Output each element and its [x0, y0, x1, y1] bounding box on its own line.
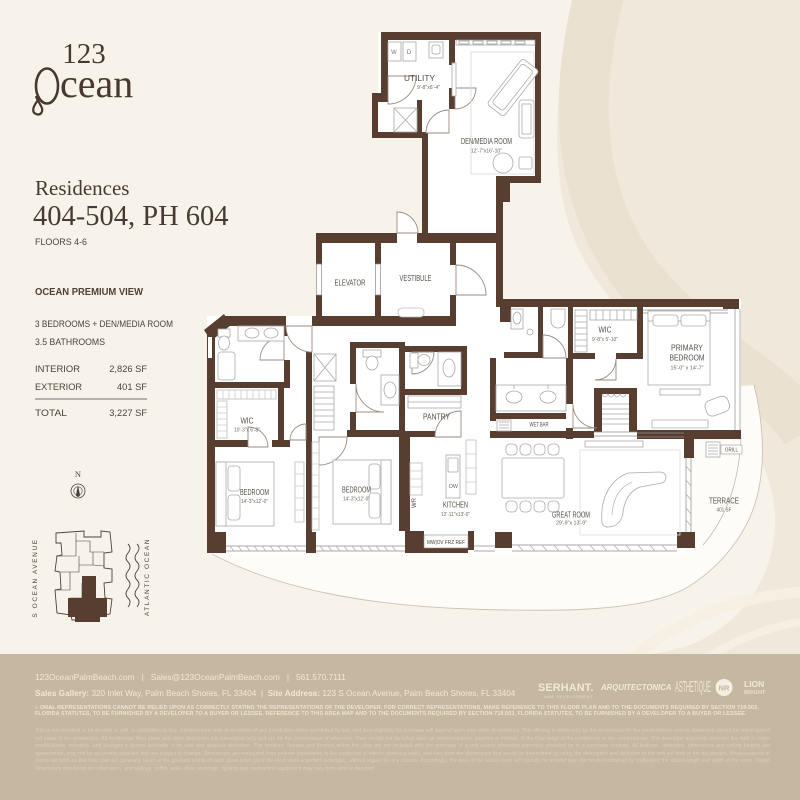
- svg-text:Sales Gallery: 320 Inlet Way,: Sales Gallery: 320 Inlet Way, Palm Beach…: [35, 689, 516, 698]
- svg-text:WIC: WIC: [599, 325, 612, 335]
- svg-text:WR: WR: [412, 497, 418, 508]
- svg-text:PRIMARY: PRIMARY: [671, 343, 703, 353]
- svg-text:VESTIBULE: VESTIBULE: [400, 273, 432, 283]
- svg-text:EXTERIOR: EXTERIOR: [35, 382, 82, 392]
- svg-text:OCEAN PREMIUM VIEW: OCEAN PREMIUM VIEW: [35, 286, 143, 298]
- svg-text:WIC: WIC: [241, 416, 254, 426]
- svg-text:NEW DEVELOPMENT: NEW DEVELOPMENT: [544, 695, 593, 699]
- svg-text:BRIGHT: BRIGHT: [744, 690, 766, 696]
- svg-text:SERHANT.: SERHANT.: [538, 682, 594, 694]
- svg-text:BEDROOM: BEDROOM: [342, 485, 371, 495]
- svg-text:INTERIOR: INTERIOR: [35, 364, 80, 374]
- svg-text:12'-7"x16'-10": 12'-7"x16'-10": [471, 149, 502, 155]
- svg-text:NR: NR: [719, 684, 730, 693]
- svg-text:PANTRY: PANTRY: [423, 412, 450, 422]
- svg-text:2,826 SF: 2,826 SF: [109, 364, 147, 374]
- svg-text:TERRACE: TERRACE: [709, 496, 739, 506]
- svg-text:UTILITY: UTILITY: [404, 73, 435, 83]
- svg-text:GREAT ROOM: GREAT ROOM: [552, 510, 590, 520]
- svg-text:404-504, PH 604: 404-504, PH 604: [33, 201, 229, 232]
- svg-text:BEDROOM: BEDROOM: [240, 487, 269, 497]
- svg-text:15'-0" x 14'-7": 15'-0" x 14'-7": [671, 366, 704, 372]
- svg-text:D: D: [407, 50, 412, 56]
- svg-text:401 SF: 401 SF: [717, 508, 733, 514]
- svg-text:KITCHEN: KITCHEN: [443, 500, 468, 510]
- svg-text:ARQUITECTONICA: ARQUITECTONICA: [600, 683, 672, 692]
- svg-text:W: W: [391, 50, 397, 56]
- svg-text:BEDROOM: BEDROOM: [670, 353, 705, 363]
- svg-text:123OceanPalmBeach.com | Sa: 123OceanPalmBeach.com | Sales@123OceanPa…: [35, 672, 346, 682]
- svg-text:9'-8"x6'-4": 9'-8"x6'-4": [417, 85, 440, 91]
- svg-text:12'-11"x13'-0": 12'-11"x13'-0": [441, 512, 470, 518]
- svg-text:14'-3"x12'-0": 14'-3"x12'-0": [241, 499, 268, 505]
- svg-text:GRILL: GRILL: [725, 448, 738, 454]
- svg-text:9'-8"x 5'-10": 9'-8"x 5'-10": [592, 337, 618, 343]
- svg-text:cean: cean: [60, 61, 133, 106]
- svg-text:DEN/MEDIA ROOM: DEN/MEDIA ROOM: [461, 136, 512, 146]
- svg-text:FLOORS 4-6: FLOORS 4-6: [35, 237, 87, 248]
- svg-text:LION: LION: [744, 679, 764, 689]
- svg-text:Residences: Residences: [35, 176, 129, 200]
- svg-text:S OCEAN AVENUE: S OCEAN AVENUE: [32, 538, 39, 617]
- svg-text:10'-3"x 6'-8": 10'-3"x 6'-8": [234, 428, 260, 434]
- svg-text:N: N: [75, 469, 81, 479]
- svg-text:WET BAR: WET BAR: [530, 423, 549, 429]
- svg-text:14'-3"x12'-0": 14'-3"x12'-0": [343, 497, 370, 503]
- svg-text:ASTHETIQUE: ASTHETIQUE: [675, 679, 711, 696]
- svg-text:ELEVATOR: ELEVATOR: [335, 278, 366, 288]
- svg-text:3.5 BATHROOMS: 3.5 BATHROOMS: [35, 337, 105, 347]
- svg-text:TOTAL: TOTAL: [35, 408, 67, 418]
- svg-text:401 SF: 401 SF: [117, 382, 147, 392]
- svg-text:3 BEDROOMS + DEN/MEDIA ROOM: 3 BEDROOMS + DEN/MEDIA ROOM: [35, 319, 173, 329]
- svg-text:3,227 SF: 3,227 SF: [109, 408, 147, 418]
- svg-text:ATLANTIC OCEAN: ATLANTIC OCEAN: [144, 538, 151, 616]
- svg-text:DW: DW: [449, 484, 459, 490]
- svg-text:29'-9"x 13'-9": 29'-9"x 13'-9": [556, 521, 587, 527]
- svg-text:MW|OV FRZ REF: MW|OV FRZ REF: [427, 540, 465, 546]
